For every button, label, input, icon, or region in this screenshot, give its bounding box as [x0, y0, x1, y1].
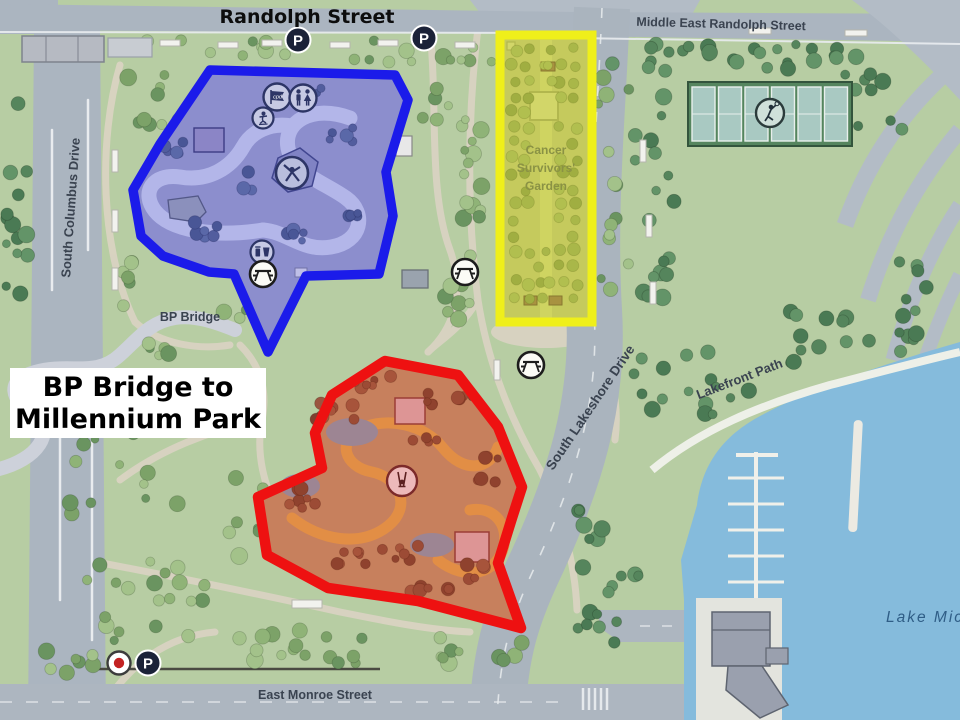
tree [199, 579, 211, 591]
tree [473, 178, 490, 195]
tree [444, 102, 452, 110]
tree [576, 517, 592, 533]
tree [637, 389, 647, 399]
map-canvas: P cpd [0, 0, 960, 720]
tree [754, 47, 766, 59]
tree [644, 401, 660, 417]
swing-ride-icon [387, 466, 417, 496]
lake-michigan-label: Lake Mich [886, 609, 960, 626]
tree [82, 575, 92, 585]
tree [786, 354, 801, 369]
tree [629, 369, 639, 379]
tree [606, 57, 620, 71]
tree [465, 298, 475, 308]
tree [726, 393, 735, 402]
tree [332, 657, 344, 669]
yellow-highlight-rect [500, 35, 592, 322]
tree [118, 300, 130, 312]
tree [792, 40, 801, 49]
tree [172, 575, 187, 590]
tree [460, 196, 474, 210]
tree [137, 112, 152, 127]
tree [607, 176, 622, 191]
annotation-line2: Millennium Park [15, 404, 262, 435]
tree [450, 311, 466, 327]
tree [438, 653, 449, 664]
tree [231, 548, 248, 565]
tree [657, 394, 667, 404]
tree [347, 650, 360, 663]
tree [649, 147, 662, 160]
tree [292, 623, 307, 638]
tree [12, 189, 24, 201]
tree [93, 558, 108, 573]
tree [289, 639, 303, 653]
tree [459, 169, 469, 179]
tree [205, 47, 215, 57]
tree [71, 654, 81, 664]
tree [683, 41, 694, 52]
tree [116, 461, 124, 469]
tree [407, 57, 416, 66]
tree [62, 495, 78, 511]
tree [664, 171, 673, 180]
tree [806, 53, 822, 69]
tree [110, 636, 119, 645]
tree [773, 44, 783, 54]
tree [111, 578, 121, 588]
tree [430, 113, 443, 126]
tree [729, 55, 744, 70]
tree [574, 505, 584, 515]
tree [70, 455, 82, 467]
tree [121, 271, 134, 284]
tree [38, 643, 55, 660]
tree [603, 586, 615, 598]
tree [609, 637, 621, 649]
tree [895, 308, 910, 323]
tree [837, 315, 849, 327]
tree [321, 632, 332, 643]
annotation-box: BP Bridge to Millennium Park [10, 368, 266, 438]
tree [658, 256, 669, 267]
tree [660, 268, 674, 282]
tree [169, 496, 185, 512]
tree [594, 521, 611, 538]
tree [701, 345, 716, 360]
tree [597, 274, 605, 282]
tree [708, 410, 717, 419]
tree [463, 158, 473, 168]
tree [645, 41, 658, 54]
bp-bridge-label: BP Bridge [160, 310, 220, 324]
park-map: P cpd [0, 0, 960, 720]
tree [762, 62, 773, 73]
tree [656, 361, 670, 375]
tree [853, 121, 862, 130]
tree [603, 146, 614, 157]
tree [863, 334, 876, 347]
tree [164, 593, 175, 604]
tree [114, 627, 124, 637]
tree [812, 340, 827, 355]
tree [642, 61, 655, 74]
tree [895, 328, 905, 338]
tree [487, 57, 496, 66]
tree [300, 650, 311, 661]
tree [780, 61, 795, 76]
tree [434, 631, 447, 644]
tree [120, 69, 137, 86]
tree [2, 282, 11, 291]
tree [592, 610, 601, 619]
tree [581, 619, 592, 630]
tree [473, 210, 486, 223]
tree [841, 70, 850, 79]
tree [365, 55, 374, 64]
tree [233, 632, 247, 646]
tree [634, 571, 644, 581]
tree [648, 272, 659, 283]
tree [234, 313, 245, 324]
tree [575, 560, 591, 576]
tree [446, 56, 455, 65]
tree [901, 294, 911, 304]
tree [865, 84, 877, 96]
tree [657, 111, 666, 120]
tree [186, 596, 196, 606]
tree [623, 259, 633, 269]
tree [497, 653, 510, 666]
tree [399, 43, 415, 59]
tree [616, 571, 626, 581]
tree [142, 337, 155, 350]
tree [160, 70, 169, 79]
tree [664, 47, 675, 58]
tree [124, 256, 138, 270]
tree [796, 345, 806, 355]
tree [59, 665, 74, 680]
tree [790, 309, 803, 322]
tree [659, 64, 672, 77]
tree [383, 56, 395, 68]
tree [77, 437, 91, 451]
tree [864, 68, 877, 81]
tree [182, 629, 195, 642]
tree [680, 349, 692, 361]
tree [277, 650, 287, 660]
tree [100, 612, 111, 623]
tree [160, 568, 170, 578]
tree [21, 248, 35, 262]
tree [2, 240, 10, 248]
tree [604, 230, 615, 241]
tree [149, 620, 162, 633]
tree [603, 282, 618, 297]
tree [894, 345, 906, 357]
tree [468, 137, 476, 145]
tree [21, 166, 33, 178]
tree [667, 194, 681, 208]
randolph-street-label: Randolph Street [220, 6, 395, 28]
tree [171, 560, 186, 575]
tree [612, 617, 622, 627]
tree [3, 165, 18, 180]
tree [248, 37, 258, 47]
tree [11, 97, 25, 111]
tree [195, 593, 209, 607]
tree [417, 112, 428, 123]
tree [255, 629, 270, 644]
tree [461, 146, 469, 154]
tree [140, 480, 149, 489]
tree [18, 226, 35, 243]
tree [455, 647, 463, 655]
tree [894, 257, 905, 268]
tree [652, 186, 661, 195]
tree [45, 663, 57, 675]
tree [595, 70, 611, 86]
tree [146, 557, 155, 566]
tree [140, 465, 155, 480]
tree [599, 87, 615, 103]
tree [919, 280, 933, 294]
tree [461, 116, 469, 124]
east-monroe-label: East Monroe Street [258, 688, 373, 702]
tree [702, 44, 718, 60]
tree [457, 56, 465, 64]
tree [848, 49, 864, 65]
tree [250, 644, 263, 657]
tree [605, 218, 618, 231]
tree [585, 534, 595, 544]
tree [636, 353, 647, 364]
tree [912, 265, 924, 277]
tree [223, 526, 236, 539]
tree [161, 346, 177, 362]
tree [684, 387, 693, 396]
tree [153, 595, 164, 606]
tree [121, 581, 135, 595]
tree [142, 494, 150, 502]
tree [369, 36, 379, 46]
tree [280, 49, 291, 60]
tree [231, 517, 242, 528]
tree [655, 89, 672, 106]
tree [147, 575, 163, 591]
tree [514, 635, 529, 650]
tree [238, 51, 248, 61]
tree [357, 633, 368, 644]
tree [630, 155, 640, 165]
tree [793, 329, 808, 344]
tree [228, 470, 243, 485]
tree [593, 621, 605, 633]
tree [1, 208, 13, 220]
tree [896, 123, 908, 135]
tree [819, 311, 834, 326]
tree [624, 84, 634, 94]
tree [840, 336, 852, 348]
tree [13, 286, 28, 301]
tree [13, 249, 22, 258]
tree [430, 82, 443, 95]
tree [87, 649, 98, 660]
tree [86, 498, 96, 508]
tree [886, 116, 896, 126]
tree [473, 122, 490, 139]
tree [830, 51, 844, 65]
tree [349, 54, 360, 65]
tree [151, 88, 165, 102]
tree [908, 326, 924, 342]
tree [910, 306, 920, 316]
annotation-line1: BP Bridge to [43, 372, 234, 403]
tree [654, 289, 671, 306]
